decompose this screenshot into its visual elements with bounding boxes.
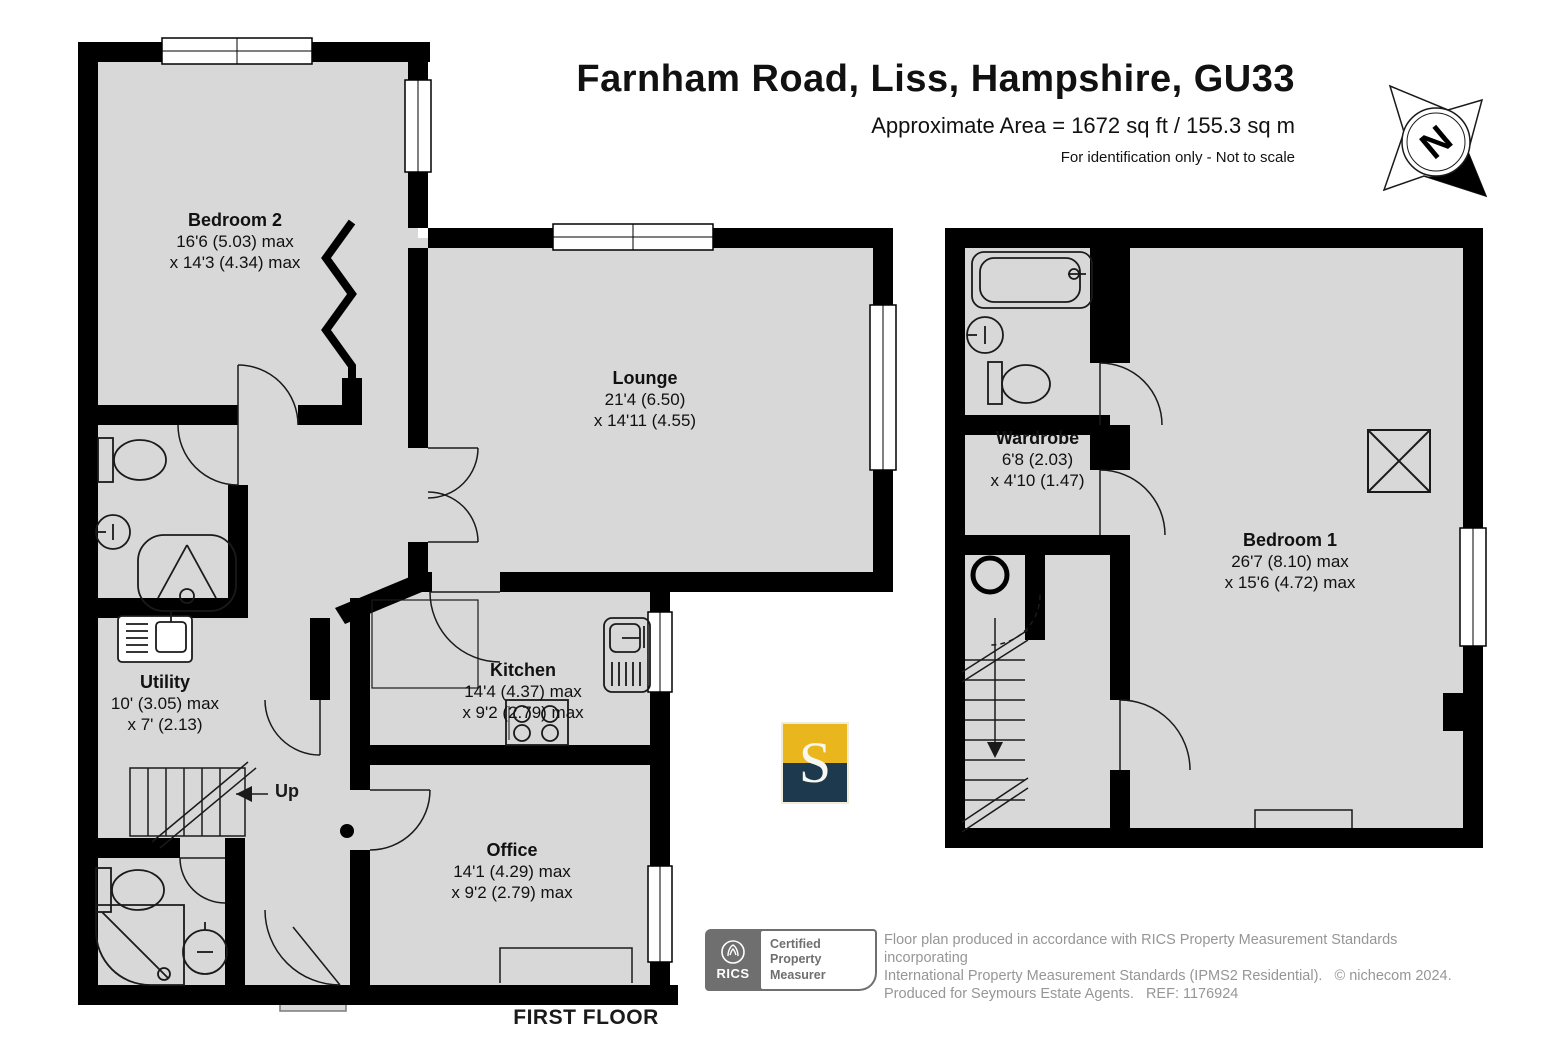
room-label-kitchen: Kitchen 14'4 (4.37) max x 9'2 (2.79) max (408, 660, 638, 723)
disclaimer: For identification only - Not to scale (576, 149, 1295, 166)
rics-brand: RICS (716, 966, 749, 981)
floor-title: FIRST FLOOR (486, 1006, 686, 1030)
page-title: Farnham Road, Liss, Hampshire, GU33 (576, 58, 1295, 101)
seymours-letter: S (783, 724, 847, 802)
room-label-utility: Utility 10' (3.05) max x 7' (2.13) (60, 672, 270, 735)
rics-line: Property (770, 952, 875, 968)
rics-line: Measurer (770, 968, 875, 984)
room-label-lounge: Lounge 21'4 (6.50) x 14'11 (4.55) (545, 368, 745, 431)
rics-lion-icon (720, 939, 746, 965)
compass-rose: N (1384, 86, 1486, 196)
seymours-logo: S (781, 722, 849, 804)
footer-smallprint: Floor plan produced in accordance with R… (884, 931, 1484, 1004)
room-label-bedroom-1: Bedroom 1 26'7 (8.10) max x 15'6 (4.72) … (1160, 530, 1420, 593)
room-label-wardrobe: Wardrobe 6'8 (2.03) x 4'10 (1.47) (945, 428, 1130, 491)
footer-line-3: Produced for Seymours Estate Agents. REF… (884, 985, 1484, 1003)
room-label-office: Office 14'1 (4.29) max x 9'2 (2.79) max (397, 840, 627, 903)
utility-sink-icon (118, 612, 192, 662)
rics-badge: RICS Certified Property Measurer (705, 929, 877, 991)
rics-line: Certified (770, 937, 875, 953)
header: Farnham Road, Liss, Hampshire, GU33 Appr… (576, 58, 1295, 166)
footer-line-1: Floor plan produced in accordance with R… (884, 931, 1484, 967)
room-label-bedroom-2: Bedroom 2 16'6 (5.03) max x 14'3 (4.34) … (110, 210, 360, 273)
footer-line-2: International Property Measurement Stand… (884, 967, 1484, 985)
floorplan-page: { "header": { "title": "Farnham Road, Li… (0, 0, 1547, 1057)
approximate-area: Approximate Area = 1672 sq ft / 155.3 sq… (576, 113, 1295, 139)
stairs-up-label: Up (275, 781, 299, 802)
